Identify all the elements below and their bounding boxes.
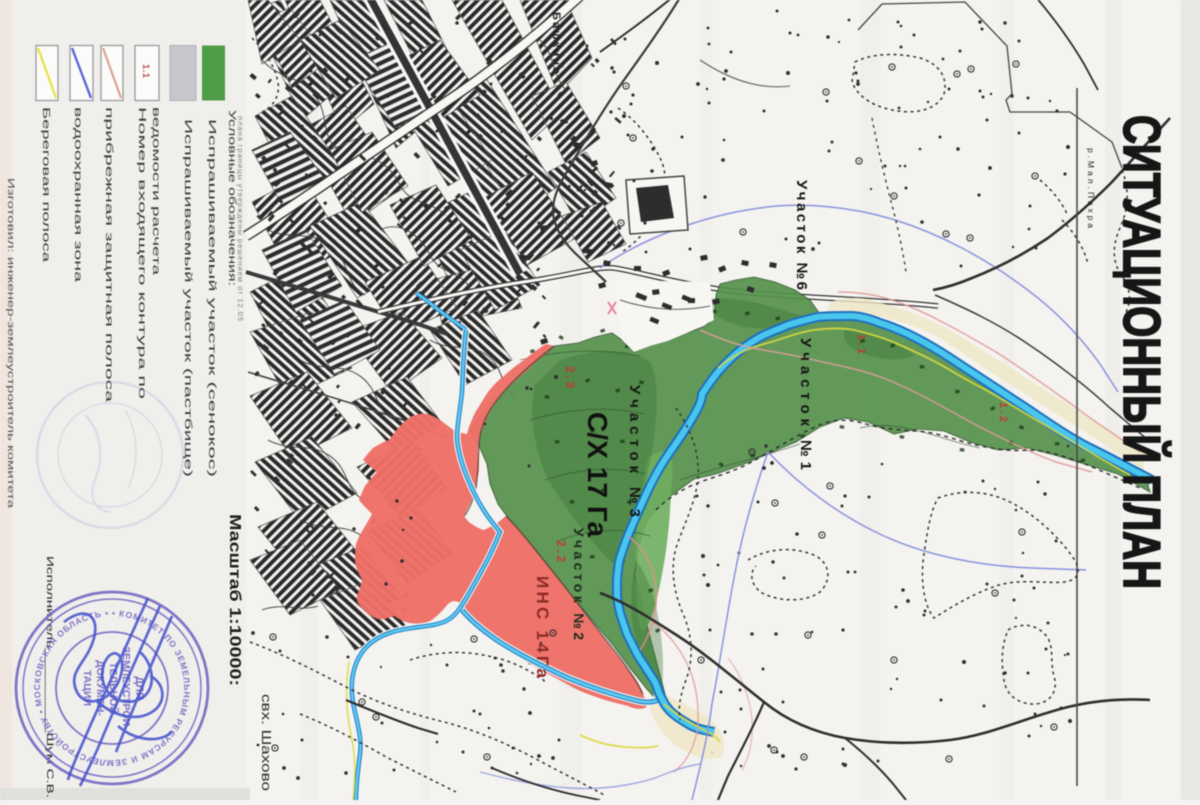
svg-text:С/Х 17 Га: С/Х 17 Га xyxy=(582,412,613,537)
svg-text:Участок №3: Участок №3 xyxy=(626,385,643,517)
svg-text:свх. Шахово: свх. Шахово xyxy=(259,694,273,791)
svg-text:ведомости расчета: ведомости расчета xyxy=(150,107,161,276)
svg-text:р.Мал.Пахра: р.Мал.Пахра xyxy=(1086,148,1096,228)
svg-text:Номер входящего контура по: Номер входящего контура по xyxy=(136,107,147,400)
svg-text:водоохранная зона: водоохранная зона xyxy=(72,107,83,283)
svg-text:1.1: 1.1 xyxy=(855,334,867,354)
svg-text:Испрашиваемый участок (пастбищ: Испрашиваемый участок (пастбище) xyxy=(182,119,194,477)
svg-text:Участок №1: Участок №1 xyxy=(797,338,814,470)
svg-text:Участок №6: Участок №6 xyxy=(793,180,810,290)
svg-text:Условные обозначения:: Условные обозначения: xyxy=(226,110,238,286)
svg-text:1.1: 1.1 xyxy=(140,64,151,79)
svg-text:2.3: 2.3 xyxy=(563,366,577,388)
svg-text:2.2: 2.2 xyxy=(554,540,568,562)
svg-text:Участок №2: Участок №2 xyxy=(571,528,587,640)
svg-text:прибрежная защитная полоса: прибрежная защитная полоса xyxy=(103,107,115,403)
svg-text:Испрашиваемый участок (сенокос: Испрашиваемый участок (сенокос) xyxy=(206,119,217,477)
svg-text:Масштаб 1:10000:: Масштаб 1:10000: xyxy=(226,514,243,686)
svg-text:Башкино: Башкино xyxy=(550,12,562,74)
svg-text:Береговая полоса: Береговая полоса xyxy=(40,107,51,263)
svg-text:Изготовил: инженер-землеустрои: Изготовил: инженер-землеустроитель комит… xyxy=(6,178,16,508)
svg-text:1.2: 1.2 xyxy=(997,402,1009,422)
svg-text:СИТУАЦИОННЫЙ ПЛАН: СИТУАЦИОННЫЙ ПЛАН xyxy=(1112,115,1171,589)
